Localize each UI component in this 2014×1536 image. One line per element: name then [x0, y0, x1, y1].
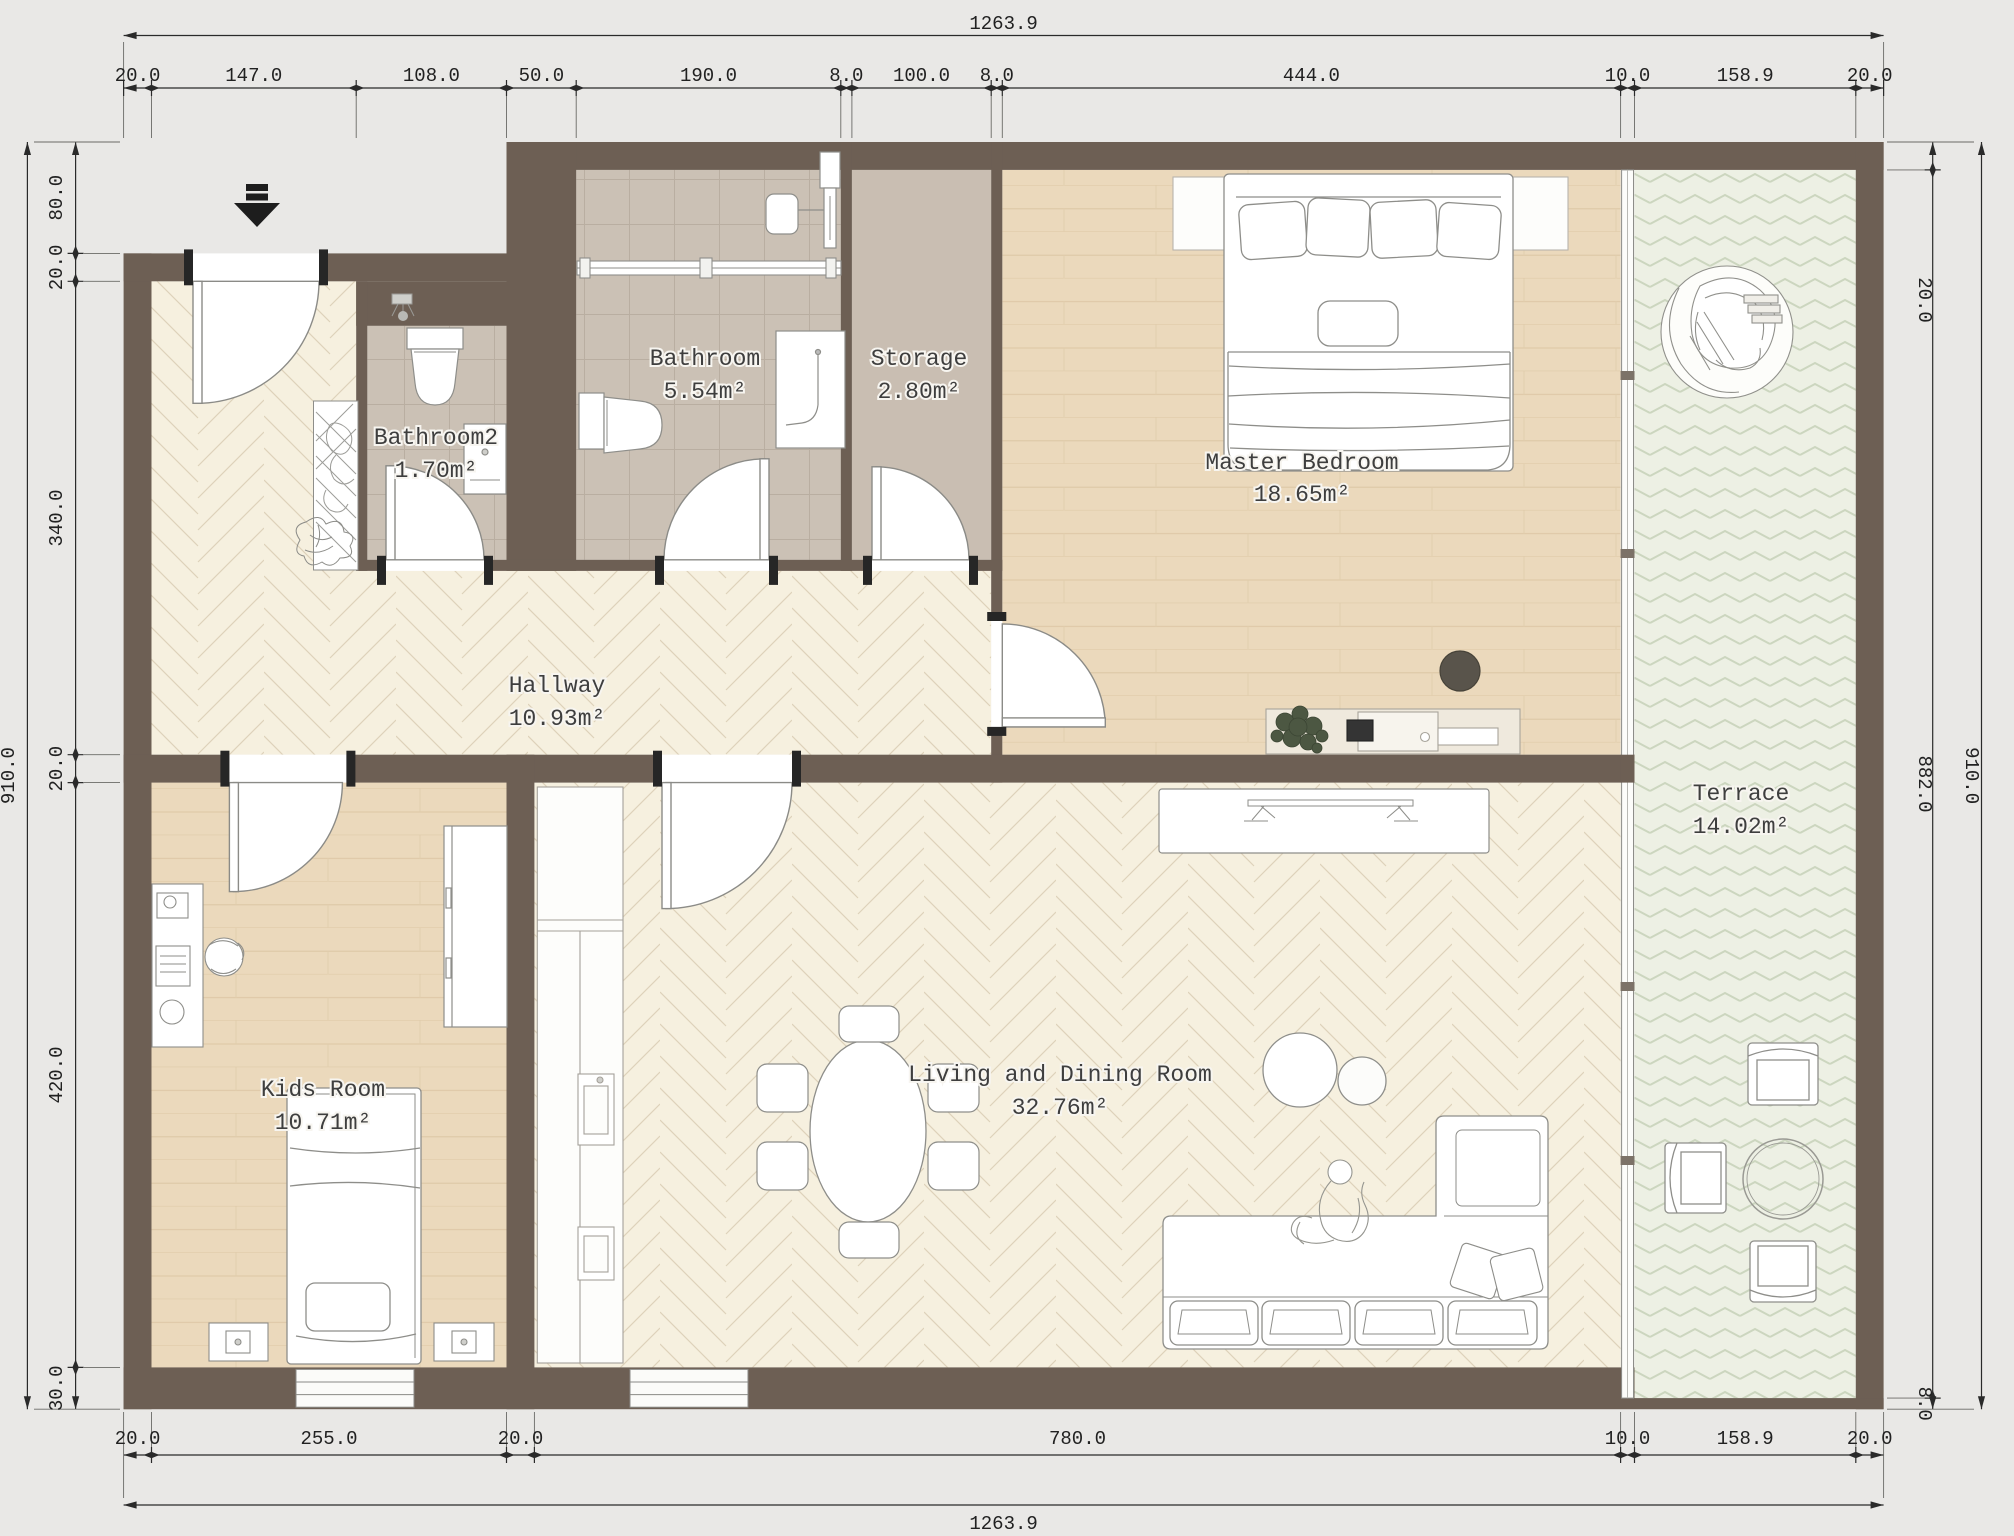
svg-text:Master Bedroom: Master Bedroom — [1205, 450, 1398, 476]
svg-text:1263.9: 1263.9 — [969, 13, 1037, 35]
svg-text:20.0: 20.0 — [1847, 65, 1893, 87]
svg-text:8.0: 8.0 — [1913, 1387, 1935, 1421]
svg-text:14.02m²: 14.02m² — [1693, 814, 1790, 840]
svg-text:10.0: 10.0 — [1605, 65, 1651, 87]
svg-text:8.0: 8.0 — [980, 65, 1014, 87]
svg-text:420.0: 420.0 — [46, 1046, 68, 1103]
svg-text:30.0: 30.0 — [46, 1365, 68, 1411]
svg-text:Bathroom: Bathroom — [650, 346, 760, 372]
svg-text:20.0: 20.0 — [498, 1428, 544, 1450]
svg-text:340.0: 340.0 — [46, 489, 68, 546]
svg-text:Terrace: Terrace — [1693, 781, 1790, 807]
svg-text:32.76m²: 32.76m² — [1012, 1095, 1109, 1121]
svg-text:18.65m²: 18.65m² — [1254, 482, 1351, 508]
svg-text:20.0: 20.0 — [46, 245, 68, 291]
svg-text:158.9: 158.9 — [1717, 65, 1774, 87]
svg-text:Kids Room: Kids Room — [261, 1077, 385, 1103]
svg-text:50.0: 50.0 — [519, 65, 565, 87]
svg-text:1.70m²: 1.70m² — [395, 458, 478, 484]
svg-text:20.0: 20.0 — [115, 1428, 161, 1450]
svg-text:80.0: 80.0 — [46, 175, 68, 221]
svg-text:20.0: 20.0 — [1913, 277, 1935, 323]
svg-text:444.0: 444.0 — [1283, 65, 1340, 87]
svg-text:2.80m²: 2.80m² — [878, 379, 961, 405]
svg-text:20.0: 20.0 — [46, 746, 68, 792]
svg-text:Hallway: Hallway — [509, 673, 606, 699]
svg-text:147.0: 147.0 — [225, 65, 282, 87]
svg-text:Bathroom2: Bathroom2 — [374, 425, 498, 451]
svg-text:255.0: 255.0 — [300, 1428, 357, 1450]
svg-text:Storage: Storage — [871, 346, 968, 372]
svg-text:910.0: 910.0 — [1960, 747, 1982, 804]
svg-text:8.0: 8.0 — [829, 65, 863, 87]
svg-text:100.0: 100.0 — [893, 65, 950, 87]
svg-text:10.71m²: 10.71m² — [275, 1110, 372, 1136]
svg-text:190.0: 190.0 — [680, 65, 737, 87]
svg-text:780.0: 780.0 — [1049, 1428, 1106, 1450]
svg-text:108.0: 108.0 — [403, 65, 460, 87]
svg-text:910.0: 910.0 — [0, 747, 20, 804]
svg-text:1263.9: 1263.9 — [969, 1513, 1037, 1535]
svg-text:20.0: 20.0 — [115, 65, 161, 87]
svg-text:5.54m²: 5.54m² — [664, 379, 747, 405]
svg-text:20.0: 20.0 — [1847, 1428, 1893, 1450]
svg-text:158.9: 158.9 — [1717, 1428, 1774, 1450]
svg-text:Living and Dining Room: Living and Dining Room — [908, 1062, 1212, 1088]
svg-text:10.0: 10.0 — [1605, 1428, 1651, 1450]
svg-text:882.0: 882.0 — [1913, 755, 1935, 812]
svg-text:10.93m²: 10.93m² — [509, 706, 606, 732]
